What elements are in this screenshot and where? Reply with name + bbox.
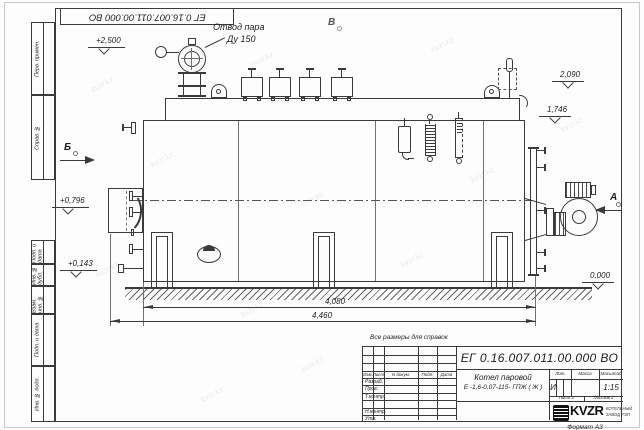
safety-valve-foot — [243, 97, 247, 101]
extension-line — [110, 234, 111, 326]
col-ndoc: N докум. — [384, 372, 418, 378]
product-name: Котел паровой — [457, 373, 549, 383]
view-marker-a-circle — [616, 202, 621, 207]
front-nozzle — [133, 212, 143, 213]
shell-seam — [483, 121, 484, 281]
drain-pipe — [124, 268, 143, 269]
margin-box-inv-podl: Инв. № подл. — [31, 366, 55, 422]
row-nkontr: Н.контр. — [365, 410, 386, 415]
hdr-lit: Лит. — [550, 371, 571, 378]
margin-box-vzam-inv: Взам. инв. № — [31, 286, 55, 314]
margin-box-perv-primen: Перв. примен. — [31, 22, 55, 95]
level-gauge-1 — [398, 126, 411, 153]
front-nozzle — [133, 249, 143, 250]
margin-box-sprav-no: Справ. № — [31, 95, 55, 180]
dimension-line-4080 — [143, 307, 536, 308]
kvzr-logo-text: KVZR — [570, 404, 603, 417]
hook-pipe — [519, 107, 520, 120]
extension-line — [535, 276, 536, 326]
safety-valve-4 — [331, 77, 353, 97]
steam-outlet-callout-line1: Отвод пара — [213, 23, 264, 32]
steam-outlet-callout-line2: Ду 150 — [227, 35, 255, 44]
margin-label: Подп. и дата — [32, 241, 43, 263]
reference-note: Все размеры для справок — [370, 335, 448, 342]
doc-number-rotated: ЕГ 0.16.007.011.00.000 ВО — [89, 12, 206, 22]
steam-pipe — [183, 72, 184, 97]
margin-label: Взам. инв. № — [32, 287, 43, 313]
safety-valve-foot — [315, 97, 319, 101]
extension-line — [143, 282, 144, 326]
steam-valve-cross — [191, 48, 192, 70]
hdr-scale: Масштаб — [599, 371, 623, 378]
flange-stud-plate — [544, 164, 546, 171]
safety-valve-cap — [306, 68, 314, 70]
shell-seam — [238, 121, 239, 281]
gauge-drain-pipe — [408, 158, 414, 159]
dim-arrowhead — [144, 305, 153, 309]
steam-pipe — [200, 72, 201, 97]
margin-label: Перв. примен. — [32, 23, 43, 94]
kvzr-tagline-1: КОТЕЛЬНЫЙ — [606, 407, 632, 411]
vent-valve-stem — [124, 127, 131, 128]
elevation-mark-0000: 0,000 — [582, 265, 614, 288]
safety-valve-foot — [333, 97, 337, 101]
safety-valve-foot — [347, 97, 351, 101]
lit-value: И — [549, 381, 557, 394]
gauge-top-ball — [427, 114, 433, 120]
rear-flange-cap — [528, 147, 539, 149]
dimension-4080-value: 4,080 — [325, 298, 345, 306]
steam-valve-spindle — [166, 52, 179, 53]
safety-valve-foot — [285, 97, 289, 101]
margin-label: Инв. № дубл. — [32, 265, 43, 285]
front-door-axis — [126, 191, 127, 231]
margin-label: Справ. № — [32, 96, 43, 179]
safety-valve-cap — [338, 68, 346, 70]
fan-hub — [572, 210, 586, 224]
margin-label: Инв. № подл. — [32, 367, 43, 421]
safety-valve-stem — [341, 69, 342, 77]
doc-number: ЕГ 0.16.007.011.00.000 ВО — [458, 349, 621, 367]
safety-valve-foot — [271, 97, 275, 101]
safety-valve-foot — [301, 97, 305, 101]
elevation-mark-0143: +0,143 — [60, 253, 97, 276]
margin-box-podp-data1: Подп. и дата — [31, 240, 55, 264]
kvzr-logo-icon — [553, 405, 569, 421]
burner-pipe-flange — [546, 208, 554, 236]
burner-motor — [565, 182, 591, 198]
col-podp: Подп. — [418, 372, 437, 378]
scale-value: 1:15 — [599, 382, 623, 394]
safety-valve-cap — [276, 68, 284, 70]
safety-valve-2 — [269, 77, 291, 97]
support-leg-web — [496, 236, 508, 288]
steam-valve-bonnet — [188, 38, 196, 45]
kvzr-tagline-2: ЗАВОД РЭП — [606, 413, 630, 417]
safety-valve-1 — [241, 77, 263, 97]
support-leg-web — [318, 236, 330, 288]
lifting-lug-hole — [216, 89, 221, 94]
view-marker-v: В — [328, 18, 335, 28]
lifting-lug-hole — [489, 89, 494, 94]
doc-number-rotated-box: ЕГ 0.16.007.011.00.000 ВО — [60, 8, 234, 25]
drawing-sheet: kvzr.kz kvzr.kz kvzr.kz kvzr.kz kvzr.kz … — [0, 0, 644, 430]
col-data: Дата — [437, 372, 456, 378]
sensor-rod — [509, 72, 510, 98]
flange-stud-plate — [544, 265, 546, 272]
dimension-4460-value: 4,460 — [312, 312, 332, 320]
view-b-arrowhead — [85, 156, 95, 164]
manhole-cap — [203, 245, 215, 251]
view-marker-b: Б — [64, 143, 71, 153]
elevation-mark-2090: 2,090 — [552, 64, 584, 87]
sheet-count: Листов 2 — [584, 396, 623, 401]
front-nozzle — [134, 232, 143, 233]
hdr-mass: Масса — [571, 371, 599, 378]
dim-arrowhead — [526, 305, 535, 309]
product-designation: Е -1,6-0,07-115- ГПЖ ( Ж ) — [457, 384, 549, 393]
gauge-bottom-ball — [427, 156, 433, 162]
row-utv: Утв. — [365, 417, 376, 422]
margin-box-inv-dubl: Инв. № дубл. — [31, 264, 55, 286]
flange-stud-plate — [544, 147, 546, 154]
row-razrab: Разраб. — [365, 380, 383, 385]
title-block: Изм. Лист N докум. Подп. Дата Разраб. Пр… — [362, 346, 622, 422]
gauge-bottom-ball — [456, 158, 462, 164]
gauge-stem — [404, 118, 405, 126]
dim-arrowhead — [111, 319, 120, 323]
col-izm: Изм. — [363, 372, 373, 378]
rear-flange — [530, 148, 537, 276]
boiler-platform — [165, 98, 520, 121]
level-gauge-2 — [425, 124, 436, 156]
margin-label: Подп. и дата — [32, 315, 43, 365]
rear-flange-cap — [528, 274, 539, 276]
view-a-arrowhead — [595, 206, 605, 214]
view-a-arrow-line — [604, 210, 621, 211]
ground-hatch — [125, 289, 592, 300]
elevation-mark-2500: +2,500 — [88, 30, 125, 53]
safety-valve-3 — [299, 77, 321, 97]
gauge-ribs — [457, 120, 462, 133]
elevation-mark-1746: 1,746 — [539, 99, 571, 122]
dim-arrowhead — [526, 319, 535, 323]
steam-valve-bore — [184, 51, 200, 67]
vent-valve-handle — [122, 124, 124, 131]
view-marker-b-circle — [73, 151, 78, 156]
motor-cap — [591, 185, 596, 195]
boiler-centerline — [133, 200, 535, 201]
steam-valve-cross — [181, 58, 203, 59]
view-marker-v-circle — [337, 26, 342, 31]
view-b-arrow-line — [60, 160, 86, 161]
safety-valve-stem — [309, 69, 310, 77]
safety-valve-stem — [279, 69, 280, 77]
sheet-number: Лист 1 — [549, 396, 584, 401]
safety-valve-cap — [248, 68, 256, 70]
margin-box-podp-data2: Подп. и дата — [31, 314, 55, 366]
format-label: Формат А3 — [550, 424, 620, 430]
vent-valve — [131, 122, 136, 134]
shell-seam — [375, 121, 376, 281]
front-nozzle — [133, 196, 143, 197]
row-tkontr: Т.контр. — [365, 395, 385, 400]
row-prov: Пров. — [365, 387, 378, 392]
support-leg-web — [156, 236, 168, 288]
dimension-line-4460 — [110, 321, 536, 322]
sensor-rod-head — [506, 58, 513, 72]
elevation-mark-0796: +0,796 — [52, 190, 89, 213]
safety-valve-stem — [251, 69, 252, 77]
col-list: Лист — [373, 372, 384, 378]
safety-valve-foot — [257, 97, 261, 101]
flange-stud-plate — [544, 249, 546, 256]
